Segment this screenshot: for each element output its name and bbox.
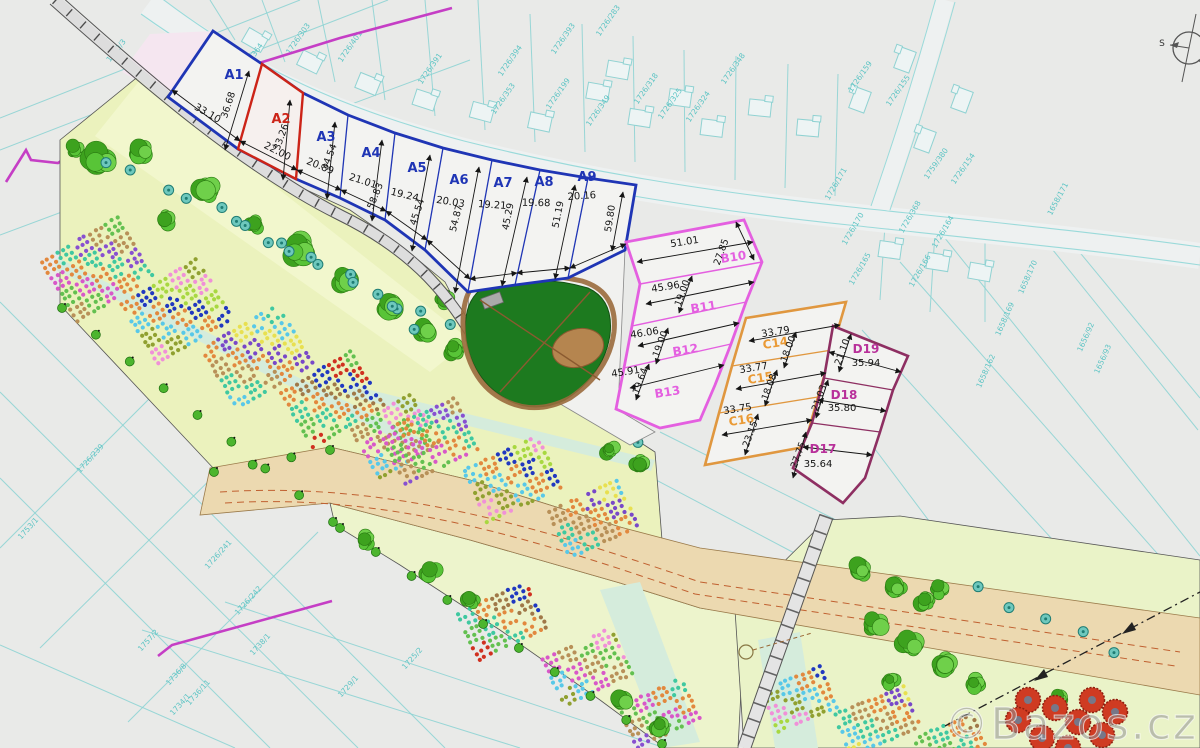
decorative-shape bbox=[813, 115, 821, 122]
tree bbox=[654, 719, 665, 730]
tree bbox=[633, 458, 646, 471]
tree bbox=[420, 324, 435, 339]
small-teal-tree bbox=[125, 165, 135, 175]
survey-dot bbox=[378, 547, 380, 549]
survey-dot bbox=[200, 410, 202, 412]
plot-a6-label: A6 bbox=[449, 173, 468, 188]
decorative-shape bbox=[1044, 617, 1047, 620]
decorative-shape bbox=[185, 197, 188, 200]
small-teal-tree bbox=[409, 324, 419, 334]
survey-dot bbox=[664, 739, 666, 741]
tree bbox=[857, 565, 869, 577]
tree bbox=[66, 139, 79, 152]
decorative-shape bbox=[717, 116, 726, 123]
small-teal-tree bbox=[240, 220, 250, 230]
small-teal-tree bbox=[164, 185, 174, 195]
dim-d19-len: 35.94 bbox=[852, 358, 881, 369]
decorative-shape bbox=[280, 242, 283, 245]
tree bbox=[196, 181, 215, 200]
survey-dot bbox=[233, 437, 235, 439]
compass-north-label: S bbox=[1159, 39, 1165, 49]
tree bbox=[605, 444, 614, 453]
decorative-shape bbox=[391, 305, 394, 308]
plot-a5-label: A5 bbox=[407, 161, 426, 176]
decorative-shape bbox=[316, 263, 319, 266]
small-teal-tree bbox=[101, 158, 111, 168]
survey-dot bbox=[216, 467, 218, 469]
small-teal-tree bbox=[373, 289, 383, 299]
tree bbox=[872, 619, 889, 636]
tree bbox=[885, 675, 894, 684]
survey-dot bbox=[521, 643, 523, 645]
decorative-shape bbox=[105, 161, 108, 164]
decorative-shape bbox=[895, 238, 904, 245]
decorative-shape bbox=[545, 110, 554, 118]
plot-d19-label: D19 bbox=[853, 342, 880, 356]
decorative-shape bbox=[220, 206, 223, 209]
tree bbox=[937, 657, 954, 674]
survey-dot bbox=[628, 715, 630, 717]
plot-d17-label: D17 bbox=[810, 442, 837, 456]
site-plan: 1726/3641726/3031726/4011726/3911726/394… bbox=[0, 0, 1200, 748]
plot-d18-label: D18 bbox=[831, 388, 858, 402]
tree bbox=[892, 583, 904, 595]
plot-a4-label: A4 bbox=[361, 146, 380, 161]
dim-d18-len: 35.80 bbox=[828, 403, 857, 414]
small-teal-tree bbox=[277, 238, 287, 248]
survey-dot bbox=[449, 595, 451, 597]
tree-clump bbox=[129, 139, 152, 164]
survey-dot bbox=[293, 452, 295, 454]
decorative-shape bbox=[310, 256, 313, 259]
tree bbox=[447, 341, 458, 352]
tree bbox=[139, 145, 152, 158]
decorative-shape bbox=[685, 86, 694, 93]
tree bbox=[462, 591, 475, 604]
site-plan-drawing: 1726/3641726/3031726/4011726/3911726/394… bbox=[0, 0, 1200, 748]
survey-dot bbox=[132, 357, 134, 359]
decorative-shape bbox=[288, 250, 291, 253]
decorative-shape bbox=[645, 106, 654, 113]
survey-dot bbox=[301, 490, 303, 492]
tree bbox=[158, 212, 172, 226]
survey-dot bbox=[335, 517, 337, 519]
decorative-shape bbox=[244, 224, 247, 227]
decorative-shape bbox=[943, 250, 952, 257]
decorative-shape bbox=[977, 585, 980, 588]
small-teal-tree bbox=[1109, 648, 1119, 658]
plot-a7-label: A7 bbox=[493, 176, 512, 191]
decorative-shape bbox=[167, 189, 170, 192]
survey-dot bbox=[98, 330, 100, 332]
small-teal-tree bbox=[217, 203, 227, 213]
decorative-shape bbox=[623, 58, 632, 65]
tree bbox=[358, 533, 371, 546]
plot-a8-label: A8 bbox=[534, 175, 553, 190]
decorative-shape bbox=[1112, 651, 1115, 654]
small-teal-tree bbox=[416, 306, 426, 316]
decorative-shape bbox=[603, 80, 612, 87]
small-teal-tree bbox=[306, 252, 316, 262]
plot-a3-label: A3 bbox=[316, 130, 335, 145]
small-teal-tree bbox=[1004, 603, 1014, 613]
tree bbox=[969, 677, 979, 687]
dim-d17-len: 35.64 bbox=[804, 459, 833, 470]
decorative-shape bbox=[129, 169, 132, 172]
survey-dot bbox=[592, 691, 594, 693]
tree bbox=[619, 695, 633, 709]
small-teal-tree bbox=[1078, 627, 1088, 637]
survey-dot bbox=[342, 523, 344, 525]
survey-dot bbox=[255, 460, 257, 462]
dim-a8-width: 19.68 bbox=[522, 198, 551, 209]
survey-dot bbox=[332, 445, 334, 447]
small-teal-tree bbox=[263, 238, 273, 248]
small-teal-tree bbox=[973, 582, 983, 592]
survey-dot bbox=[166, 383, 168, 385]
watermark: ©Bazos.cz bbox=[945, 699, 1198, 748]
decorative-shape bbox=[352, 281, 355, 284]
dim-a7-width: 19.21 bbox=[478, 199, 507, 212]
small-teal-tree bbox=[445, 319, 455, 329]
survey-dot bbox=[557, 667, 559, 669]
decorative-shape bbox=[376, 293, 379, 296]
small-teal-tree bbox=[181, 193, 191, 203]
decorative-shape bbox=[235, 220, 238, 223]
tree bbox=[932, 580, 944, 592]
survey-dot bbox=[414, 571, 416, 573]
tree bbox=[918, 593, 931, 606]
tree bbox=[422, 562, 437, 577]
dim-a9-width: 20.16 bbox=[567, 190, 596, 203]
decorative-shape bbox=[349, 273, 352, 276]
small-teal-tree bbox=[387, 301, 397, 311]
decorative-shape bbox=[1082, 630, 1085, 633]
small-teal-tree bbox=[1041, 614, 1051, 624]
decorative-shape bbox=[267, 241, 270, 244]
survey-dot bbox=[267, 464, 269, 466]
small-teal-tree bbox=[284, 246, 294, 256]
decorative-shape bbox=[449, 323, 452, 326]
survey-dot bbox=[485, 619, 487, 621]
decorative-shape bbox=[765, 95, 774, 102]
tree bbox=[907, 639, 922, 654]
decorative-shape bbox=[985, 260, 994, 267]
plot-a9-label: A9 bbox=[577, 170, 596, 185]
decorative-shape bbox=[419, 310, 422, 313]
survey-dot bbox=[64, 303, 66, 305]
small-teal-tree bbox=[348, 277, 358, 287]
plot-a1-label: A1 bbox=[224, 68, 243, 83]
decorative-shape bbox=[1008, 606, 1011, 609]
decorative-shape bbox=[413, 328, 416, 331]
